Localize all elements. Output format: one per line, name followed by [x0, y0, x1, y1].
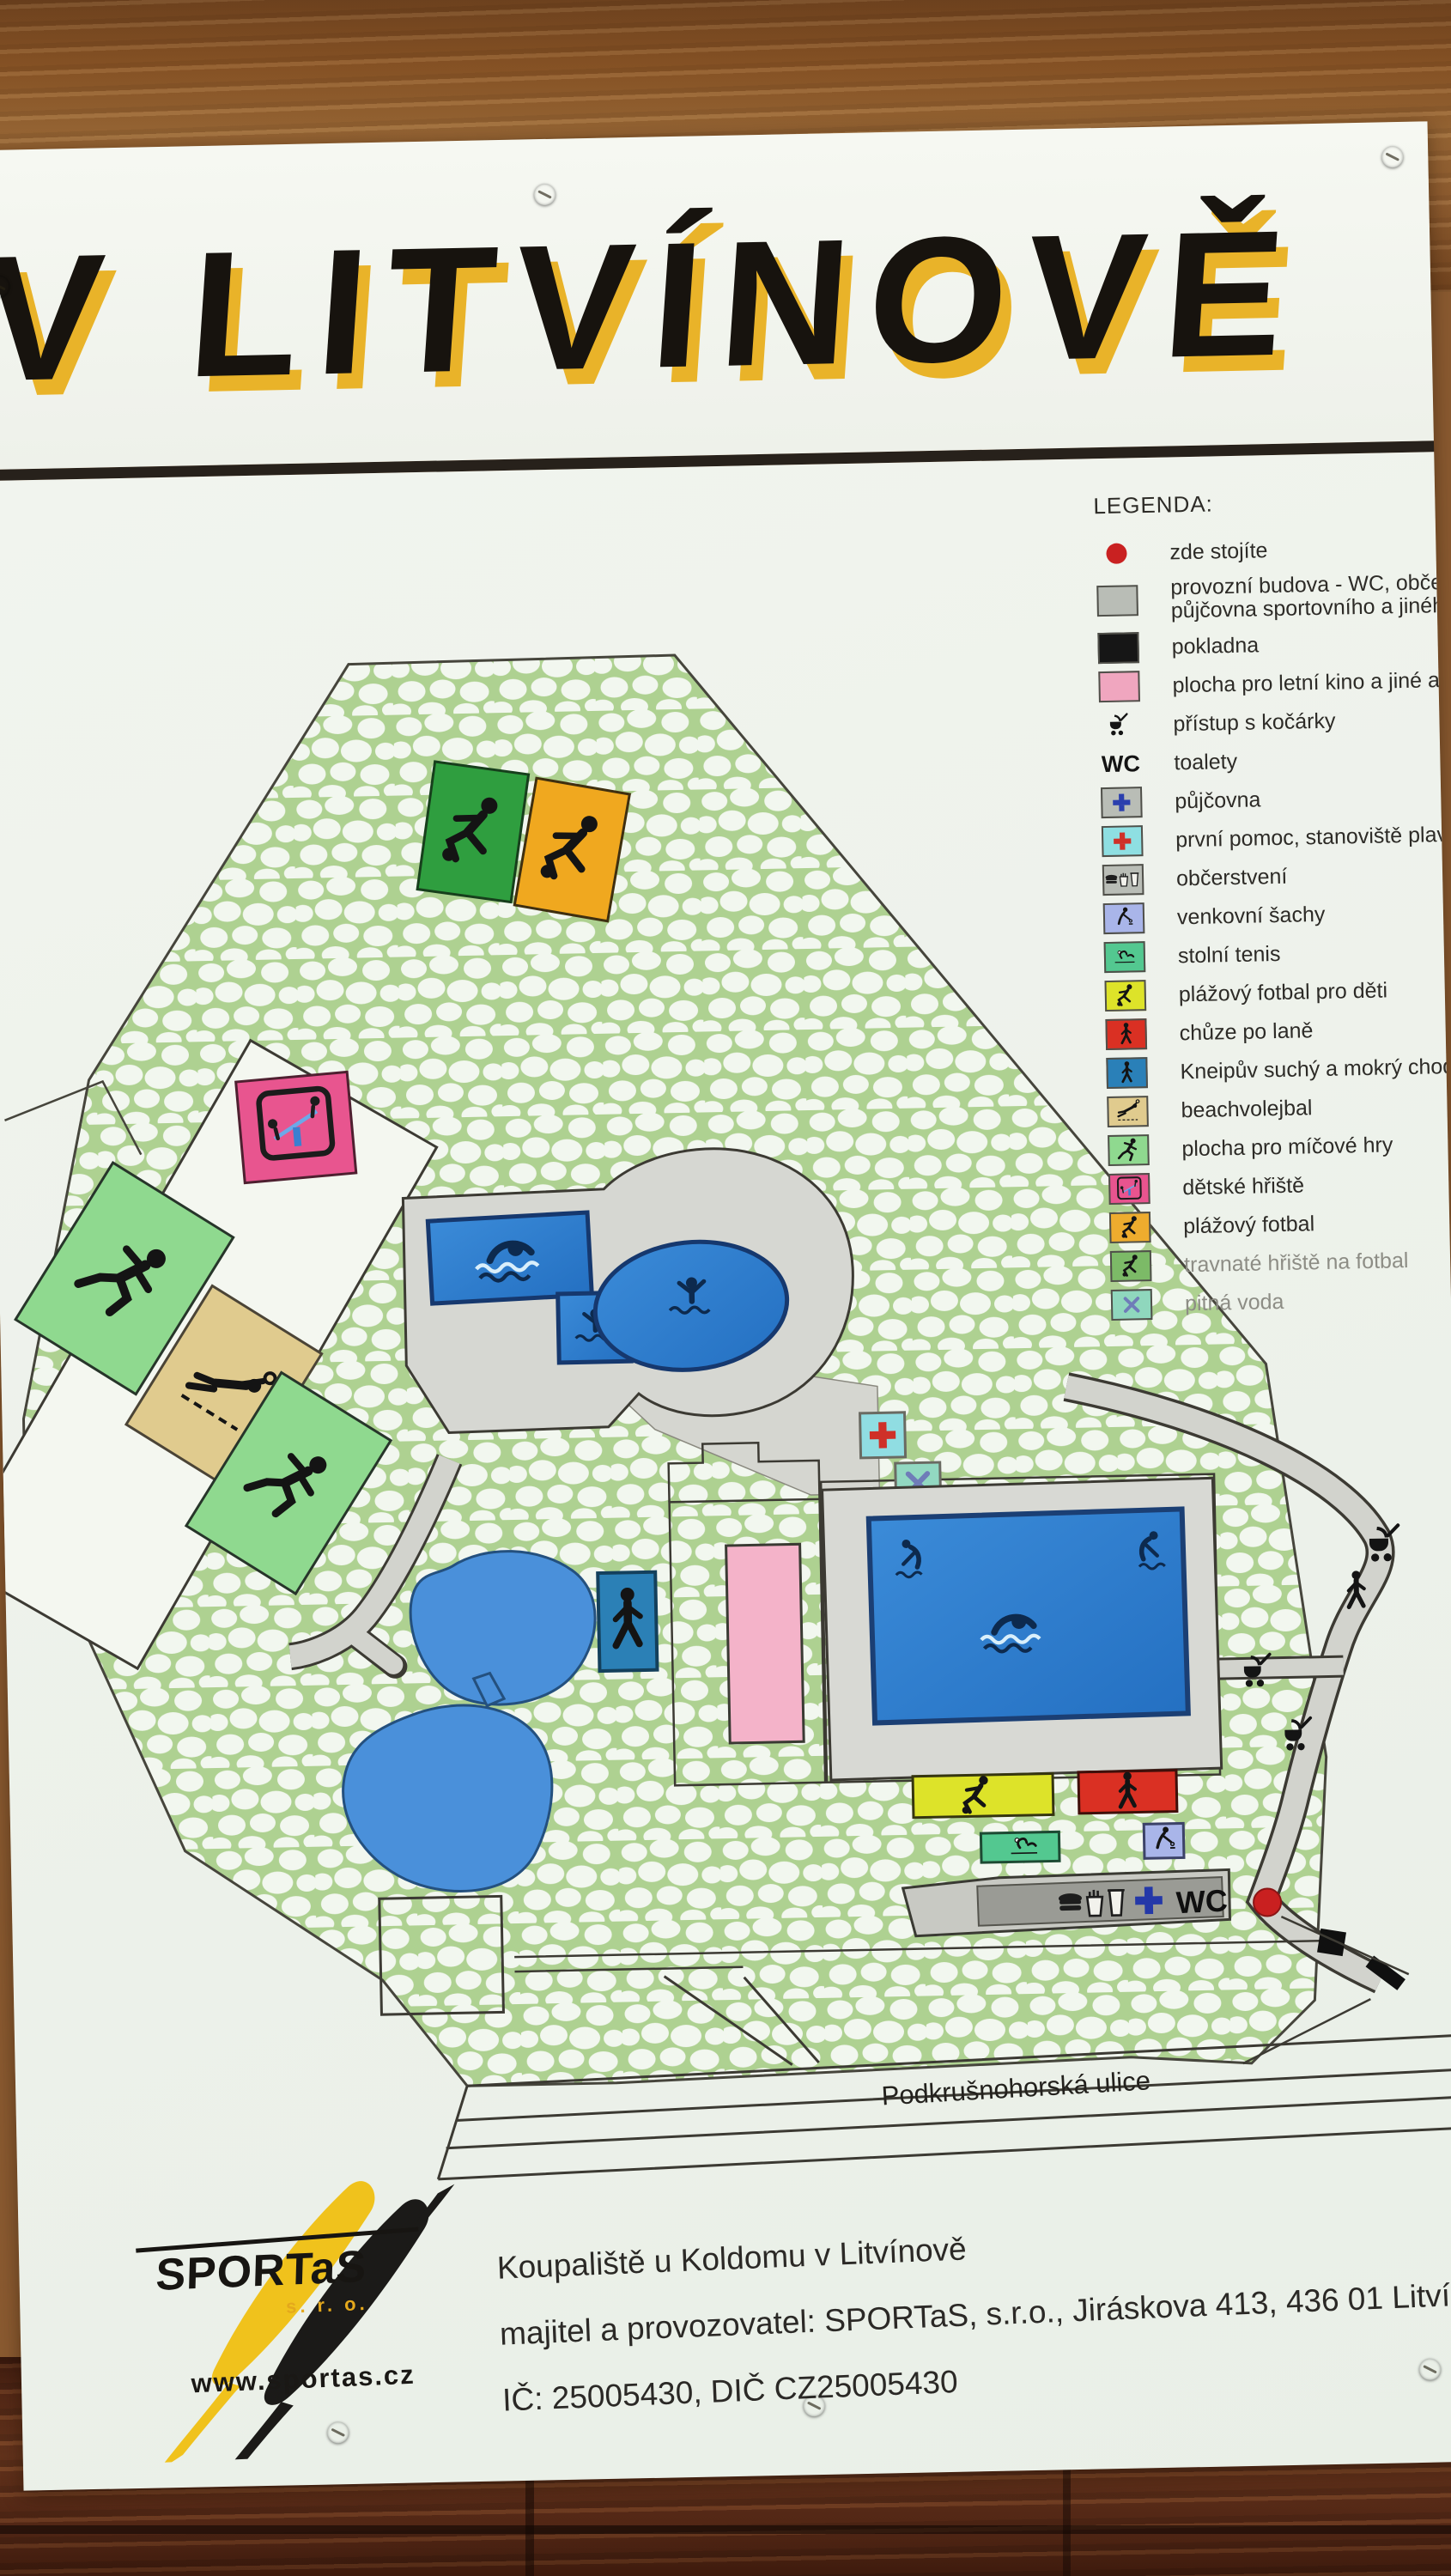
legend-item-strollers: přístup s kočárky [1097, 702, 1451, 741]
walker-icon [1114, 1060, 1139, 1086]
screw [1381, 146, 1403, 167]
logo-name: SPORTaS [155, 2241, 367, 2301]
legend-item-playground: dětské hřiště [1107, 1166, 1451, 1205]
first-aid-icon [1110, 829, 1135, 854]
legend: LEGENDA: zde stojíte provozní budova - W… [1093, 485, 1451, 1328]
map-summer-cinema [726, 1544, 804, 1743]
legend-item-kids-beach-football: plážový fotbal pro děti [1102, 973, 1451, 1012]
map-table-tennis [980, 1832, 1059, 1862]
screw [534, 184, 556, 205]
plank-gap [0, 2525, 1451, 2534]
you-are-here-dot [1254, 1888, 1282, 1917]
x-icon [1120, 1293, 1144, 1316]
legend-item-ticket-office: pokladna [1096, 625, 1451, 664]
map-outdoor-chess [1144, 1823, 1184, 1858]
legend-item-beach-football: plážový fotbal [1108, 1205, 1451, 1243]
footballer-icon [1117, 1253, 1145, 1279]
rental-plus-icon [1109, 790, 1134, 815]
sportas-logo: SPORTaS s. r. o. www.sportas.cz [90, 2166, 505, 2465]
street-label: Podkrušnohorská ulice [881, 2065, 1151, 2111]
wc-icon: WC [1102, 750, 1141, 778]
refreshments-icon [1105, 867, 1142, 892]
footballer-icon [1112, 982, 1140, 1009]
map-grass-football [415, 760, 531, 904]
legend-item-toilets: WC toalety [1098, 741, 1451, 780]
photo-of-sign: V LITVÍNOVĚ [0, 0, 1451, 2576]
you-are-here-icon [1106, 543, 1126, 563]
runner-icon [1114, 1137, 1143, 1163]
map-kneipp-walk [598, 1572, 657, 1671]
legend-item-first-aid: první pomoc, stanoviště plavčíků [1100, 818, 1451, 857]
map-rope-walk [1078, 1771, 1177, 1814]
sign-title: V LITVÍNOVĚ [0, 191, 1309, 422]
sign-board: V LITVÍNOVĚ [0, 121, 1451, 2490]
building-swatch [1096, 585, 1138, 617]
building-wc-label: WC [1175, 1882, 1229, 1920]
legend-item-grass-football: travnaté hřiště na fotbal [1108, 1243, 1451, 1282]
legend-item-cinema: plocha pro letní kino a jiné akce [1096, 664, 1451, 702]
footer-info: Koupaliště u Koldomu v Litvínově majitel… [495, 2194, 1451, 2433]
volleyball-icon [1112, 1098, 1144, 1125]
title-panel: V LITVÍNOVĚ [0, 121, 1434, 470]
map-panel: WC [0, 452, 1451, 2490]
map-kids-beach-football [913, 1773, 1053, 1817]
chess-icon [1110, 905, 1138, 932]
legend-item-beachvolleyball: beachvolejbal [1105, 1089, 1451, 1127]
seesaw-icon [1116, 1176, 1143, 1202]
cinema-swatch [1098, 671, 1140, 702]
legend-item-kneipp: Kneipův suchý a mokrý chodníček [1104, 1050, 1451, 1089]
legend-item-drinking-water: pitná voda [1109, 1282, 1451, 1321]
stroller-icon [1104, 710, 1136, 740]
map-main-pool [869, 1509, 1188, 1722]
ticket-office-swatch [1097, 632, 1139, 664]
legend-item-building: provozní budova - WC, občerstvenpůjčovna… [1095, 569, 1451, 625]
legend-item-ballgames: plocha pro míčové hry [1106, 1127, 1451, 1166]
table-tennis-icon [1110, 944, 1140, 970]
legend-item-you-are-here: zde stojíte [1094, 531, 1451, 569]
map-first-aid [860, 1413, 906, 1458]
legend-item-rope-walk: chůze po laně [1103, 1012, 1451, 1050]
map-playground [236, 1072, 356, 1183]
legend-item-rental: půjčovna [1099, 780, 1451, 818]
logo-suffix: s. r. o. [286, 2293, 369, 2318]
walker-icon [1114, 1021, 1138, 1048]
legend-item-table-tennis: stolní tenis [1102, 934, 1451, 973]
map-kids-pool-rect [428, 1212, 592, 1303]
legend-item-refreshments: občerstvení [1101, 857, 1451, 896]
legend-item-chess: venkovní šachy [1102, 896, 1451, 934]
footballer-icon [1116, 1214, 1144, 1241]
